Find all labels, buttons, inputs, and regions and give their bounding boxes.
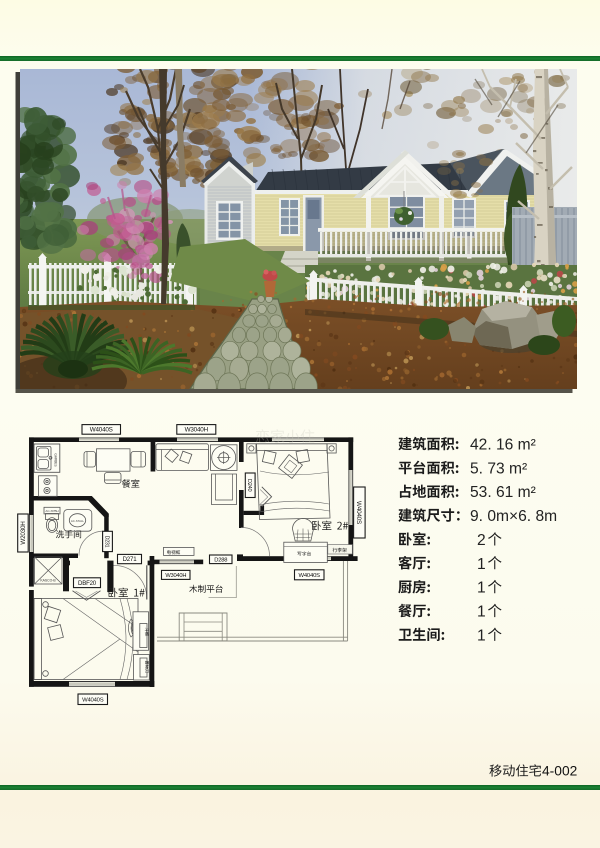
svg-text:4-002: 4-002 (542, 764, 577, 779)
svg-text:2: 2 (477, 532, 486, 549)
svg-text:9. 0m×6. 8m: 9. 0m×6. 8m (470, 508, 557, 525)
svg-text:1: 1 (477, 556, 486, 573)
svg-text:1: 1 (477, 603, 486, 620)
svg-text:53. 61 m²: 53. 61 m² (470, 484, 536, 501)
svg-text:1: 1 (477, 580, 486, 597)
svg-text:42. 16 m²: 42. 16 m² (470, 437, 536, 454)
svg-text:5. 73 m²: 5. 73 m² (470, 460, 527, 477)
svg-text:1: 1 (477, 627, 486, 644)
